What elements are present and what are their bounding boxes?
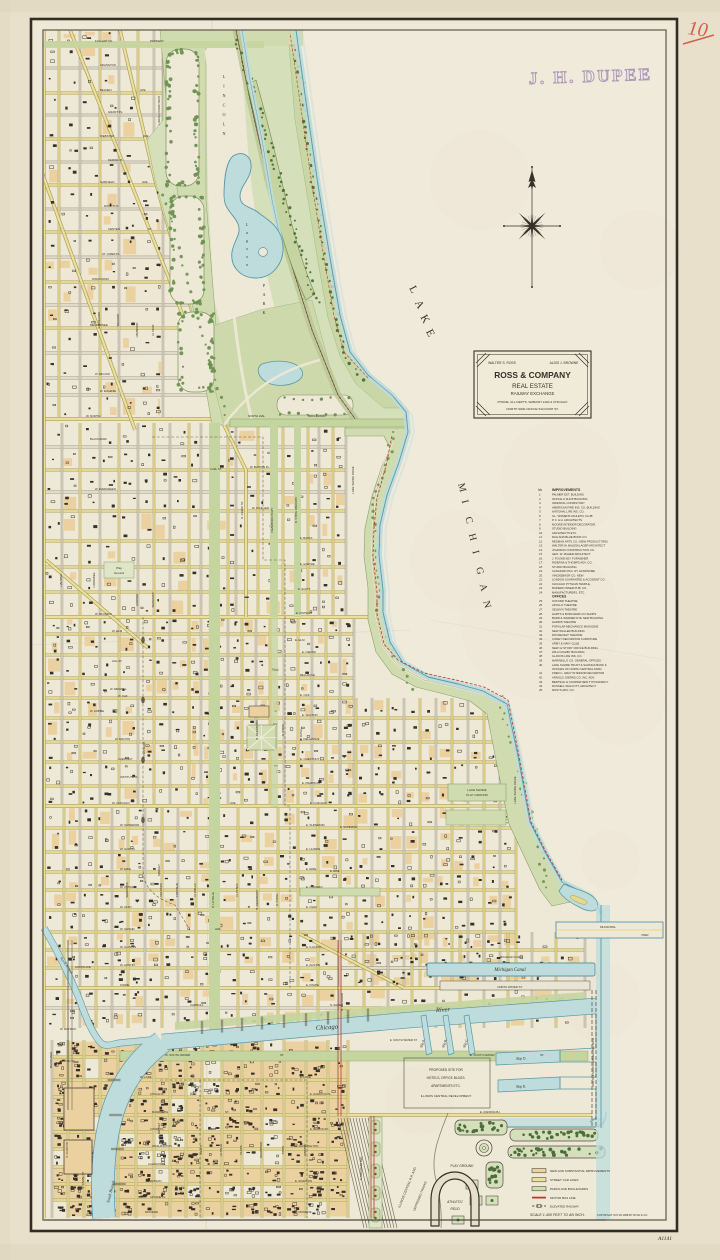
svg-text:E. CHESTNUT: E. CHESTNUT: [300, 757, 320, 761]
svg-text:N. CLARK ST.: N. CLARK ST.: [240, 501, 244, 519]
svg-text:MONROE: MONROE: [145, 1210, 158, 1214]
svg-text:PARKS AND BOULEVARDS: PARKS AND BOULEVARDS: [550, 1187, 588, 1191]
svg-text:RAILWAY EXCHANGE: RAILWAY EXCHANGE: [511, 391, 555, 396]
svg-text:40.: 40.: [539, 663, 543, 667]
svg-text:E. SOUTH WATER: E. SOUTH WATER: [470, 1053, 495, 1057]
svg-text:BELDEN: BELDEN: [100, 88, 112, 92]
svg-text:STATE: STATE: [281, 1146, 285, 1155]
svg-text:Ground: Ground: [114, 571, 124, 575]
svg-text:N: N: [222, 131, 225, 136]
svg-text:CENTER: CENTER: [108, 227, 120, 231]
svg-text:N. CLARK: N. CLARK: [235, 883, 239, 896]
svg-text:CLARK: CLARK: [239, 1145, 243, 1154]
svg-text:E. KINZIE: E. KINZIE: [306, 983, 319, 987]
svg-text:GARFIELD: GARFIELD: [100, 180, 114, 184]
svg-text:SEDGWICK: SEDGWICK: [151, 592, 155, 607]
svg-text:BLACKHAWK: BLACKHAWK: [90, 437, 107, 441]
svg-text:A: A: [262, 292, 265, 297]
svg-text:E. MADISON: E. MADISON: [295, 1179, 312, 1183]
svg-text:E. AUSTIN: E. AUSTIN: [306, 963, 320, 967]
svg-text:E. CHICAGO: E. CHICAGO: [310, 801, 328, 805]
svg-text:E. SUPERIOR: E. SUPERIOR: [340, 825, 357, 829]
svg-text:FULLERTON: FULLERTON: [95, 39, 112, 43]
svg-text:MARKET: MARKET: [157, 864, 161, 876]
svg-text:o: o: [246, 247, 248, 251]
svg-text:TOWNSEND: TOWNSEND: [142, 742, 146, 758]
svg-text:AVE.: AVE.: [142, 180, 149, 184]
svg-text:ARCADE PL.: ARCADE PL.: [150, 1195, 166, 1199]
svg-text:KINZIE: KINZIE: [120, 983, 129, 987]
svg-text:ARLINGTON: ARLINGTON: [100, 63, 116, 67]
svg-text:ST.: ST.: [280, 1053, 284, 1057]
svg-text:HOTELS, OFFICE BLDGS.: HOTELS, OFFICE BLDGS.: [427, 1076, 466, 1080]
svg-text:LAKE SHORE: LAKE SHORE: [467, 788, 486, 792]
svg-text:S. CANAL ST.: S. CANAL ST.: [81, 1171, 85, 1189]
svg-text:E. LAKE: E. LAKE: [300, 1075, 311, 1079]
svg-text:GRANT PL.: GRANT PL.: [108, 110, 123, 114]
svg-text:W. EVERGREEN: W. EVERGREEN: [95, 487, 116, 491]
svg-text:A1141: A1141: [657, 1235, 672, 1242]
svg-text:INSTITUTE PL.: INSTITUTE PL.: [120, 775, 139, 779]
svg-text:LINCOLN PARK WEST: LINCOLN PARK WEST: [157, 95, 161, 124]
svg-text:River: River: [435, 1006, 451, 1014]
svg-text:ST.: ST.: [227, 458, 231, 462]
svg-text:ROSYS ADV. CO.: ROSYS ADV. CO.: [552, 688, 575, 692]
svg-text:E. DIVISION: E. DIVISION: [296, 611, 312, 615]
svg-text:E. SOUTH WATER ST.: E. SOUTH WATER ST.: [390, 1038, 418, 1042]
svg-text:WASHINGTON: WASHINGTON: [152, 1144, 172, 1148]
svg-text:E. ONTARIO: E. ONTARIO: [306, 885, 323, 889]
svg-text:HAMMOND: HAMMOND: [135, 323, 139, 338]
svg-text:WELLS: WELLS: [199, 1145, 203, 1155]
svg-text:ATHLETIC: ATHLETIC: [446, 1200, 463, 1204]
svg-text:N. STATE: N. STATE: [275, 894, 279, 906]
svg-text:W. BURTON PL.: W. BURTON PL.: [250, 465, 270, 469]
svg-text:S. CLINTON: S. CLINTON: [65, 1142, 69, 1158]
svg-text:o: o: [246, 255, 248, 259]
svg-text:E. ILLINOIS: E. ILLINOIS: [306, 945, 321, 949]
svg-text:N. MICHIGAN: N. MICHIGAN: [340, 993, 344, 1011]
svg-text:E. OAK: E. OAK: [300, 693, 310, 697]
svg-text:AVE.: AVE.: [230, 801, 237, 805]
svg-text:ST. JAMES PL.: ST. JAMES PL.: [102, 252, 121, 256]
svg-text:W. SCHILLER: W. SCHILLER: [252, 506, 269, 510]
svg-text:COPYRIGHT OCT.20 1908 BY RYA: COPYRIGHT OCT.20 1908 BY RYAN & CO.: [597, 1213, 648, 1217]
svg-text:CALHOUN PL.: CALHOUN PL.: [148, 1162, 166, 1166]
svg-text:AVE.: AVE.: [143, 134, 150, 138]
svg-text:MICHIGAN CANAL: MICHIGAN CANAL: [500, 955, 524, 959]
svg-text:LA SALLE: LA SALLE: [219, 1143, 223, 1156]
svg-text:N. STATE PARKWAY: N. STATE PARKWAY: [294, 497, 298, 524]
svg-text:FULTON ST.: FULTON ST.: [60, 1059, 75, 1063]
svg-text:W. OHIO: W. OHIO: [120, 905, 132, 909]
svg-text:E. PEARSON: E. PEARSON: [302, 781, 320, 785]
svg-text:W. NORTH: W. NORTH: [86, 414, 100, 418]
svg-text:DEARBORN PKWY: DEARBORN PKWY: [270, 507, 274, 532]
svg-text:W. DIVISION: W. DIVISION: [95, 612, 112, 616]
svg-text:CLEVELAND: CLEVELAND: [97, 312, 101, 329]
svg-text:W. WENDELL: W. WENDELL: [110, 687, 127, 691]
svg-text:W. SUPERIOR: W. SUPERIOR: [120, 823, 139, 827]
svg-text:NORTH AVE.: NORTH AVE.: [248, 414, 265, 418]
svg-text:OFFICES: OFFICES: [552, 595, 567, 599]
svg-text:N. DEARBORN: N. DEARBORN: [255, 720, 259, 739]
svg-text:E. SCOTT: E. SCOTT: [298, 587, 311, 591]
svg-text:W. AUSTIN: W. AUSTIN: [120, 963, 135, 967]
svg-text:HALSTED: HALSTED: [59, 574, 63, 587]
svg-text:Slip D.: Slip D.: [516, 1056, 527, 1061]
svg-text:PARKWAY: PARKWAY: [150, 39, 164, 43]
svg-text:L: L: [223, 122, 226, 127]
svg-text:ST.: ST.: [225, 1110, 229, 1114]
svg-text:E. ELM: E. ELM: [295, 638, 305, 642]
svg-text:N. STATE: N. STATE: [281, 724, 285, 736]
svg-text:N. RUSH: N. RUSH: [299, 729, 303, 741]
svg-text:24.: 24.: [538, 590, 543, 594]
svg-text:No: No: [538, 488, 542, 492]
svg-text:E. SUPERIOR: E. SUPERIOR: [306, 823, 325, 827]
svg-text:W. CHICAGO: W. CHICAGO: [112, 801, 130, 805]
svg-text:E. ERIE: E. ERIE: [330, 869, 340, 873]
svg-text:BOULEVARD: BOULEVARD: [308, 414, 326, 418]
svg-text:ORLEANS: ORLEANS: [159, 883, 163, 897]
svg-text:O: O: [222, 112, 225, 117]
svg-text:SEDGWICK: SEDGWICK: [125, 882, 129, 897]
svg-text:W. WILLOW: W. WILLOW: [95, 372, 110, 376]
svg-text:HILL ST.: HILL ST.: [112, 659, 122, 663]
svg-text:DEARBORN: DEARBORN: [259, 1142, 263, 1158]
svg-text:C: C: [223, 103, 226, 108]
svg-text:W. ELM: W. ELM: [112, 629, 123, 633]
svg-text:PHONE: ALL DEPTS. WABASH 1320-: PHONE: ALL DEPTS. WABASH 1320-3 CHICAGO: [498, 400, 569, 404]
svg-text:W. GRAND: W. GRAND: [120, 927, 135, 931]
svg-text:E. ERIE: E. ERIE: [306, 867, 316, 871]
svg-text:LAKE SHORE DRIVE: LAKE SHORE DRIVE: [513, 776, 517, 803]
svg-text:NORTH WATER ST.: NORTH WATER ST.: [497, 985, 522, 989]
svg-text:WABASH: WABASH: [303, 1144, 307, 1156]
svg-text:E. WALTON: E. WALTON: [302, 713, 318, 717]
svg-text:N. MARKET: N. MARKET: [157, 1122, 161, 1138]
svg-text:K: K: [262, 310, 265, 315]
svg-text:E. BENTON PL.: E. BENTON PL.: [310, 1127, 329, 1131]
svg-text:ST.: ST.: [148, 227, 152, 231]
svg-text:Play: Play: [116, 566, 122, 570]
svg-text:E. MONROE: E. MONROE: [295, 1210, 312, 1214]
svg-text:DEMING PL.: DEMING PL.: [108, 158, 124, 162]
svg-text:PLAY GROUND: PLAY GROUND: [451, 1164, 475, 1168]
svg-text:Slip E.: Slip E.: [516, 1084, 527, 1089]
svg-text:N: N: [222, 93, 225, 98]
svg-text:ELEVATED RAILWAY: ELEVATED RAILWAY: [550, 1204, 579, 1208]
svg-text:ST.: ST.: [540, 1053, 544, 1057]
svg-text:IMPROVEMENTS: IMPROVEMENTS: [552, 488, 581, 492]
svg-text:MILWAUKEE: MILWAUKEE: [49, 1052, 53, 1069]
svg-text:WEBSTER: WEBSTER: [100, 134, 114, 138]
svg-text:W. HURON: W. HURON: [120, 847, 135, 851]
svg-text:WISCONSIN: WISCONSIN: [92, 277, 109, 281]
svg-text:COUCH PL.: COUCH PL.: [150, 1092, 165, 1096]
svg-text:E. CEDAR: E. CEDAR: [302, 650, 316, 654]
svg-text:ROSS & COMPANY: ROSS & COMPANY: [494, 370, 571, 380]
svg-text:CARL ST.: CARL ST.: [210, 467, 222, 471]
svg-text:N. DEARBORN: N. DEARBORN: [255, 890, 259, 909]
svg-text:E. RANDOLPH: E. RANDOLPH: [480, 1110, 500, 1114]
svg-text:FRANKLIN: FRANKLIN: [175, 883, 179, 897]
svg-text:E. BANKS: E. BANKS: [300, 536, 313, 540]
svg-text:W. ILLINOIS: W. ILLINOIS: [120, 945, 136, 949]
svg-text:PROPOSED SITE FOR: PROPOSED SITE FOR: [429, 1068, 463, 1072]
svg-text:AVE.: AVE.: [215, 927, 222, 931]
svg-text:APARTMENTS ETC.: APARTMENTS ETC.: [431, 1084, 461, 1088]
svg-text:45.: 45.: [539, 688, 543, 692]
svg-text:AUSTIN AVE.: AUSTIN AVE.: [75, 965, 92, 969]
svg-text:LARRABEE: LARRABEE: [92, 572, 96, 587]
svg-text:W. LAKE: W. LAKE: [140, 1075, 152, 1079]
svg-text:g: g: [246, 239, 248, 243]
svg-text:MOHAWK: MOHAWK: [116, 313, 120, 326]
svg-text:HUDSON: HUDSON: [135, 594, 139, 606]
svg-text:S. MICHIGAN AVE.: S. MICHIGAN AVE.: [359, 1156, 363, 1180]
svg-text:W. ERIE: W. ERIE: [120, 867, 131, 871]
svg-text:ALDIS J. BROWNE: ALDIS J. BROWNE: [550, 361, 580, 365]
svg-text:STREET CAR LINES: STREET CAR LINES: [550, 1178, 578, 1182]
svg-text:NEW AND SUBSTANTIAL IMPROVE: NEW AND SUBSTANTIAL IMPROVEMENTS: [550, 1169, 610, 1173]
svg-text:NORTH SIDE OFFICE 544 RUSH: NORTH SIDE OFFICE 544 RUSH ST.: [506, 407, 558, 411]
svg-text:SCALE 1-400 FEET TO AN INCH.: SCALE 1-400 FEET TO AN INCH.: [530, 1213, 585, 1217]
svg-text:AVE.: AVE.: [140, 88, 147, 92]
svg-text:Michigan Canal: Michigan Canal: [493, 968, 526, 973]
svg-text:W. EUGENIE: W. EUGENIE: [100, 389, 116, 393]
svg-text:WALTER S. ROSS: WALTER S. ROSS: [488, 361, 516, 365]
svg-text:N. LA SALLE: N. LA SALLE: [211, 892, 215, 908]
svg-text:MOTOR BUS LINE: MOTOR BUS LINE: [550, 1196, 576, 1200]
svg-text:L: L: [245, 223, 248, 227]
svg-text:W. WAYMAN: W. WAYMAN: [60, 1027, 76, 1031]
svg-text:ILLINOIS CENTRAL DEVELOPMENT: ILLINOIS CENTRAL DEVELOPMENT: [421, 1094, 472, 1098]
svg-text:MADISON: MADISON: [148, 1179, 162, 1183]
svg-text:W. HOBBIE: W. HOBBIE: [90, 709, 104, 713]
svg-text:a: a: [246, 231, 248, 235]
svg-text:LAKE SHORE DRIVE: LAKE SHORE DRIVE: [351, 466, 355, 493]
svg-text:E. HURON: E. HURON: [306, 847, 320, 851]
svg-text:MUNICIPAL: MUNICIPAL: [600, 925, 616, 929]
svg-text:REAL ESTATE: REAL ESTATE: [512, 383, 553, 390]
svg-text:PIER: PIER: [641, 933, 649, 937]
svg-text:ROSLYN PL.: ROSLYN PL.: [104, 204, 120, 208]
svg-text:n: n: [246, 263, 248, 267]
svg-text:N. WELLS: N. WELLS: [193, 883, 197, 896]
svg-text:RANDOLPH: RANDOLPH: [152, 1110, 168, 1114]
svg-text:FIELD: FIELD: [450, 1207, 460, 1211]
svg-text:CARROLL: CARROLL: [190, 1003, 204, 1007]
svg-text:CHESTNUT: CHESTNUT: [118, 757, 133, 761]
svg-text:E. OHIO: E. OHIO: [306, 905, 318, 909]
svg-text:W. SOUTH WATER: W. SOUTH WATER: [165, 1053, 190, 1057]
svg-text:PLAY GROUND: PLAY GROUND: [466, 793, 488, 797]
svg-text:W. WALTON: W. WALTON: [115, 737, 130, 741]
svg-text:E. GOETHE: E. GOETHE: [300, 562, 315, 566]
svg-text:R: R: [263, 301, 266, 306]
svg-text:N. PARK: N. PARK: [151, 324, 155, 335]
svg-text:NORTH & SOUTH CONNECTING BLVD.: NORTH & SOUTH CONNECTING BLVD.: [591, 1037, 595, 1087]
svg-text:W. OAK: W. OAK: [118, 694, 128, 698]
svg-text:L: L: [223, 74, 226, 79]
svg-text:E. HADDOCK PL.: E. HADDOCK PL.: [310, 1092, 332, 1096]
svg-text:BELLEVUE: BELLEVUE: [300, 673, 315, 677]
